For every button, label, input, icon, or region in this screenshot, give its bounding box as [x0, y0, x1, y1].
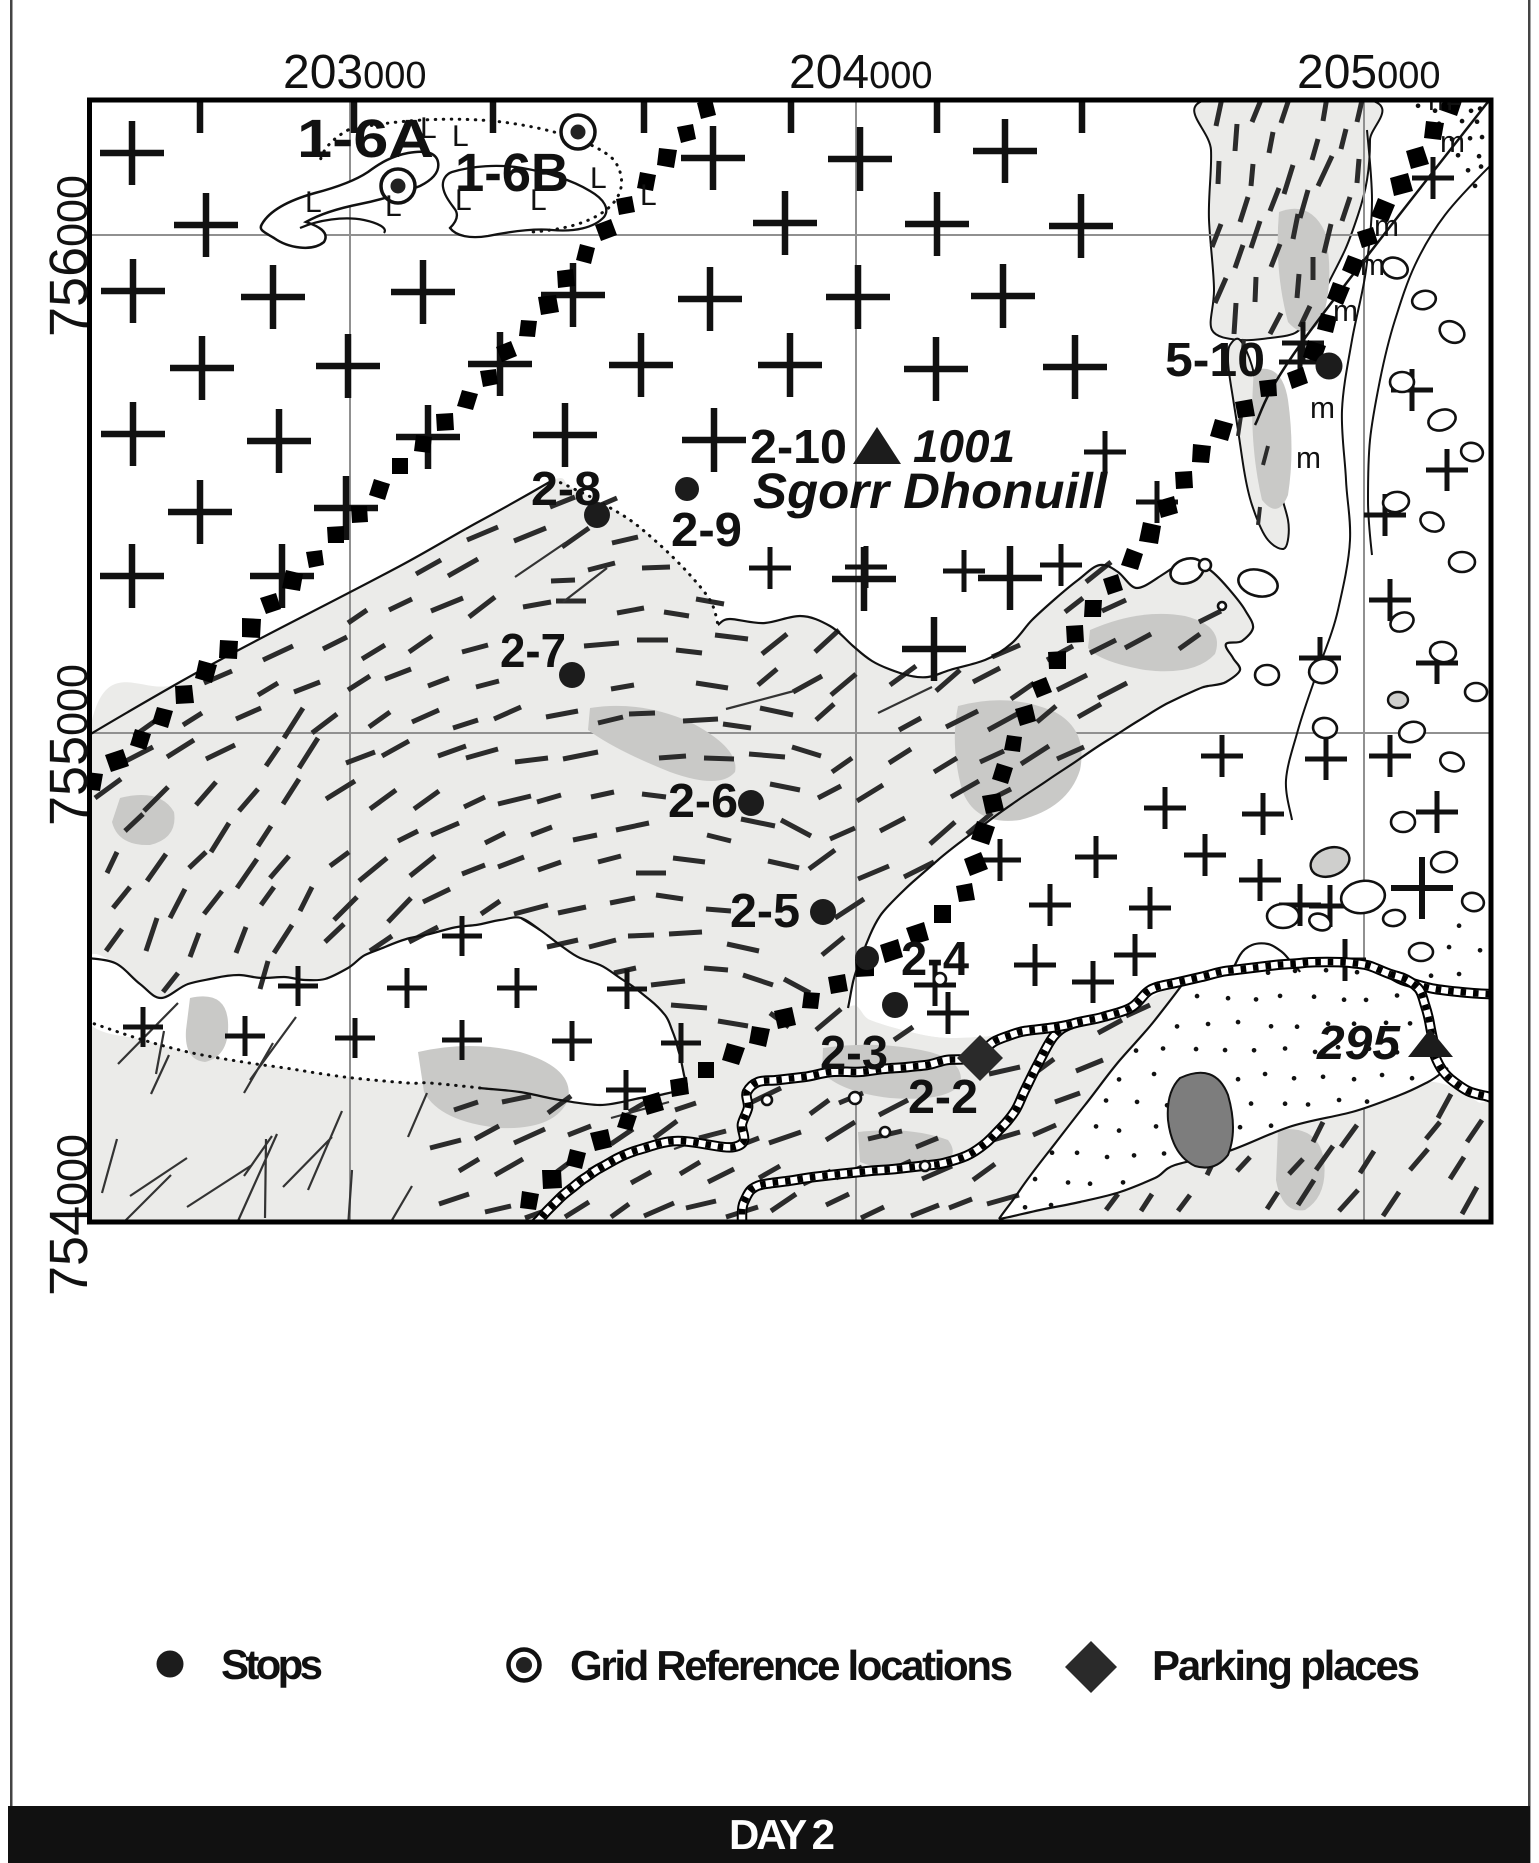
svg-text:2-6: 2-6 — [668, 775, 738, 828]
svg-text:m: m — [1374, 210, 1399, 243]
svg-text:5-10: 5-10 — [1165, 334, 1265, 387]
svg-text:m: m — [1440, 126, 1465, 159]
svg-text:1-6A: 1-6A — [297, 109, 434, 169]
svg-text:Grid Reference locations: Grid Reference locations — [570, 1642, 1013, 1689]
svg-text:Parking places: Parking places — [1152, 1642, 1420, 1689]
svg-text:Sgorr Dhonuill: Sgorr Dhonuill — [753, 463, 1108, 519]
svg-text:m: m — [1333, 295, 1358, 328]
svg-text:295: 295 — [1316, 1017, 1401, 1070]
svg-text:2-4: 2-4 — [901, 933, 969, 986]
svg-text:m: m — [1296, 442, 1321, 475]
svg-text:1-6B: 1-6B — [455, 143, 569, 203]
svg-text:L: L — [305, 186, 322, 219]
svg-text:2-2: 2-2 — [908, 1071, 978, 1124]
svg-text:2-7: 2-7 — [500, 625, 566, 678]
svg-text:m: m — [1310, 392, 1335, 425]
svg-text:L: L — [385, 190, 402, 223]
svg-text:2-8: 2-8 — [531, 463, 601, 516]
svg-text:2-5: 2-5 — [730, 885, 800, 938]
svg-text:L: L — [640, 179, 657, 212]
svg-text:DAY 2: DAY 2 — [729, 1811, 835, 1858]
svg-text:L: L — [590, 162, 607, 195]
svg-text:Stops: Stops — [221, 1641, 323, 1688]
svg-text:2-9: 2-9 — [671, 504, 742, 557]
svg-text:2-3: 2-3 — [820, 1027, 888, 1080]
